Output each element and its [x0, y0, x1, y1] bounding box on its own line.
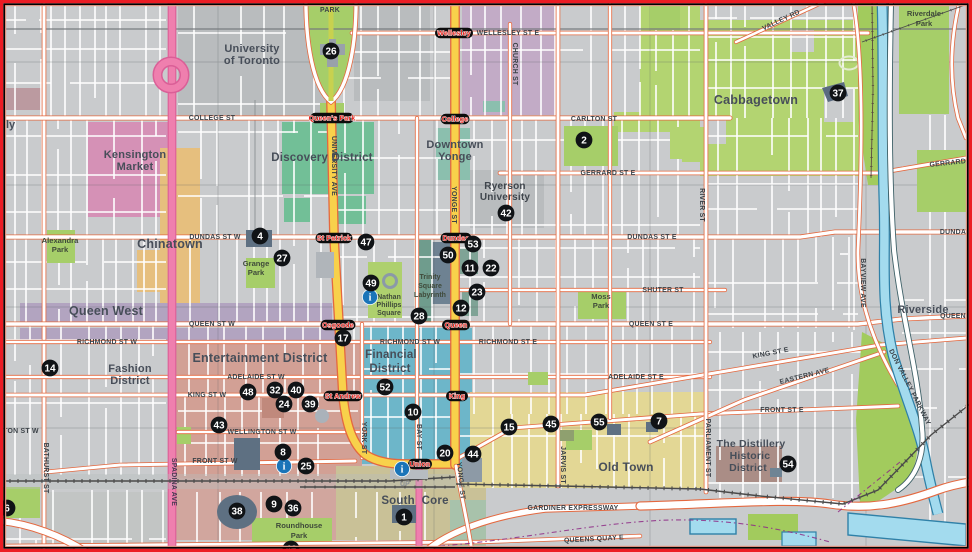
- svg-text:i: i: [401, 464, 404, 475]
- svg-text:JARVIS ST: JARVIS ST: [559, 446, 566, 484]
- svg-text:Historic: Historic: [730, 450, 771, 462]
- svg-text:43: 43: [213, 420, 225, 431]
- svg-text:BATHURST ST: BATHURST ST: [42, 443, 49, 494]
- svg-text:50: 50: [442, 250, 454, 261]
- svg-text:St Andrew: St Andrew: [325, 394, 362, 401]
- svg-text:4: 4: [257, 231, 263, 242]
- svg-text:WELLINGTON ST W: WELLINGTON ST W: [227, 429, 296, 436]
- svg-text:College: College: [442, 117, 469, 124]
- svg-text:14: 14: [44, 363, 56, 374]
- svg-text:Roundhouse: Roundhouse: [276, 521, 322, 530]
- svg-text:Park: Park: [593, 301, 610, 310]
- svg-text:TON ST W: TON ST W: [3, 428, 39, 435]
- svg-text:Discovery District: Discovery District: [271, 152, 372, 164]
- svg-text:Market: Market: [117, 161, 154, 173]
- svg-text:University: University: [480, 192, 531, 203]
- svg-text:1: 1: [401, 512, 407, 523]
- svg-text:RIVER ST: RIVER ST: [698, 188, 705, 222]
- svg-text:CHURCH ST: CHURCH ST: [511, 43, 518, 86]
- svg-text:8: 8: [280, 447, 286, 458]
- svg-text:Queen: Queen: [445, 323, 468, 330]
- svg-text:DUNDA: DUNDA: [940, 229, 966, 236]
- svg-text:Square: Square: [377, 310, 401, 317]
- svg-text:PARLIAMENT ST: PARLIAMENT ST: [704, 419, 711, 478]
- svg-text:55: 55: [593, 417, 605, 428]
- svg-text:Alexandra: Alexandra: [42, 236, 79, 245]
- svg-text:26: 26: [325, 46, 337, 57]
- svg-text:Queen West: Queen West: [69, 304, 144, 318]
- svg-text:36: 36: [287, 503, 299, 514]
- svg-text:44: 44: [467, 449, 479, 460]
- svg-text:FRONT ST E: FRONT ST E: [760, 407, 804, 414]
- svg-text:25: 25: [300, 461, 312, 472]
- svg-text:42: 42: [500, 208, 512, 219]
- svg-text:32: 32: [269, 385, 281, 396]
- svg-text:YONGE ST: YONGE ST: [450, 186, 457, 224]
- svg-text:54: 54: [782, 459, 794, 470]
- svg-text:Yonge: Yonge: [438, 151, 472, 163]
- svg-text:St Patrick: St Patrick: [317, 236, 351, 243]
- svg-text:10: 10: [407, 407, 419, 418]
- svg-text:2: 2: [581, 135, 587, 146]
- svg-text:15: 15: [503, 422, 515, 433]
- svg-text:FRONT ST W: FRONT ST W: [192, 458, 238, 465]
- svg-text:Park: Park: [916, 19, 933, 28]
- svg-text:Riverdale: Riverdale: [907, 9, 941, 18]
- svg-text:24: 24: [278, 399, 290, 410]
- svg-text:of Toronto: of Toronto: [224, 55, 280, 67]
- svg-text:22: 22: [485, 263, 497, 274]
- svg-text:ADELAIDE ST W: ADELAIDE ST W: [227, 374, 285, 381]
- svg-text:BAY ST: BAY ST: [415, 424, 422, 451]
- svg-text:Fashion: Fashion: [108, 363, 152, 375]
- svg-text:GERRARD ST E: GERRARD ST E: [580, 170, 635, 177]
- svg-text:Downtown: Downtown: [426, 139, 483, 151]
- svg-text:Osgoode: Osgoode: [322, 323, 354, 330]
- svg-text:23: 23: [471, 287, 483, 298]
- svg-text:RICHMOND ST W: RICHMOND ST W: [77, 339, 138, 346]
- svg-text:17: 17: [337, 333, 349, 344]
- svg-text:CARLTON ST: CARLTON ST: [571, 116, 618, 123]
- svg-text:37: 37: [832, 88, 844, 99]
- svg-text:Park: Park: [52, 245, 69, 254]
- svg-text:Park: Park: [291, 531, 308, 540]
- svg-text:UNIVERSITY AVE: UNIVERSITY AVE: [330, 136, 337, 196]
- svg-text:Union: Union: [410, 462, 431, 469]
- svg-text:University: University: [224, 43, 280, 55]
- svg-text:COLLEGE ST: COLLEGE ST: [189, 115, 236, 122]
- svg-text:27: 27: [276, 253, 288, 264]
- svg-text:SPADINA AVE: SPADINA AVE: [170, 458, 177, 506]
- svg-text:20: 20: [439, 448, 451, 459]
- svg-text:UP: UP: [400, 481, 410, 488]
- svg-text:Financial: Financial: [365, 349, 417, 361]
- svg-text:District: District: [110, 375, 150, 387]
- svg-text:39: 39: [304, 399, 316, 410]
- svg-text:South Core: South Core: [381, 495, 448, 507]
- svg-text:Riverside: Riverside: [897, 304, 948, 316]
- svg-text:YORK ST: YORK ST: [360, 422, 367, 455]
- svg-text:Phillips: Phillips: [377, 302, 402, 309]
- svg-text:i: i: [283, 461, 286, 472]
- svg-text:12: 12: [455, 303, 467, 314]
- svg-text:Wellesley: Wellesley: [437, 31, 471, 38]
- svg-text:The Distillery: The Distillery: [717, 438, 786, 450]
- svg-text:District: District: [369, 363, 410, 375]
- svg-text:45: 45: [545, 419, 557, 430]
- svg-text:47: 47: [360, 237, 372, 248]
- svg-text:i: i: [369, 292, 372, 303]
- svg-text:Ryerson: Ryerson: [484, 181, 525, 192]
- svg-text:Park: Park: [248, 268, 265, 277]
- svg-text:QUEEN ST E: QUEEN ST E: [629, 321, 673, 328]
- svg-text:ADELAIDE ST E: ADELAIDE ST E: [608, 374, 664, 381]
- svg-text:RICHMOND ST W: RICHMOND ST W: [380, 339, 441, 346]
- svg-text:Queen's Park: Queen's Park: [309, 116, 356, 123]
- svg-text:Kensington: Kensington: [104, 149, 167, 161]
- svg-text:Chinatown: Chinatown: [137, 237, 203, 251]
- svg-text:53: 53: [467, 239, 479, 250]
- svg-text:38: 38: [231, 506, 243, 517]
- svg-text:Nathan: Nathan: [377, 294, 401, 301]
- svg-text:Trinity: Trinity: [419, 274, 440, 281]
- svg-text:Labyrinth: Labyrinth: [414, 292, 446, 299]
- svg-text:Old Town: Old Town: [598, 460, 653, 474]
- svg-text:Grange: Grange: [243, 259, 270, 268]
- svg-text:9: 9: [271, 499, 277, 510]
- svg-text:GARDINER EXPRESSWAY: GARDINER EXPRESSWAY: [527, 505, 618, 512]
- svg-text:King: King: [449, 394, 465, 401]
- svg-text:KING ST W: KING ST W: [188, 392, 227, 399]
- svg-text:7: 7: [656, 416, 662, 427]
- svg-text:Cabbagetown: Cabbagetown: [714, 93, 798, 107]
- svg-text:RICHMOND ST E: RICHMOND ST E: [479, 339, 538, 346]
- svg-text:52: 52: [379, 382, 391, 393]
- svg-text:Entertainment District: Entertainment District: [193, 351, 329, 365]
- svg-text:11: 11: [465, 263, 476, 274]
- svg-text:28: 28: [413, 311, 425, 322]
- svg-text:PARK: PARK: [320, 7, 340, 14]
- svg-text:BAYVIEW AVE: BAYVIEW AVE: [859, 258, 866, 308]
- svg-text:District: District: [729, 462, 767, 474]
- svg-text:48: 48: [242, 387, 254, 398]
- svg-text:WELLESLEY ST E: WELLESLEY ST E: [477, 30, 540, 37]
- svg-text:DUNDAS ST E: DUNDAS ST E: [627, 234, 677, 241]
- svg-text:40: 40: [290, 385, 302, 396]
- svg-text:QUEEN ST W: QUEEN ST W: [189, 321, 235, 328]
- svg-text:ly: ly: [6, 119, 16, 131]
- svg-text:Moss: Moss: [591, 292, 610, 301]
- svg-text:49: 49: [365, 278, 377, 289]
- svg-text:Square: Square: [418, 283, 442, 290]
- svg-text:SHUTER ST: SHUTER ST: [642, 287, 684, 294]
